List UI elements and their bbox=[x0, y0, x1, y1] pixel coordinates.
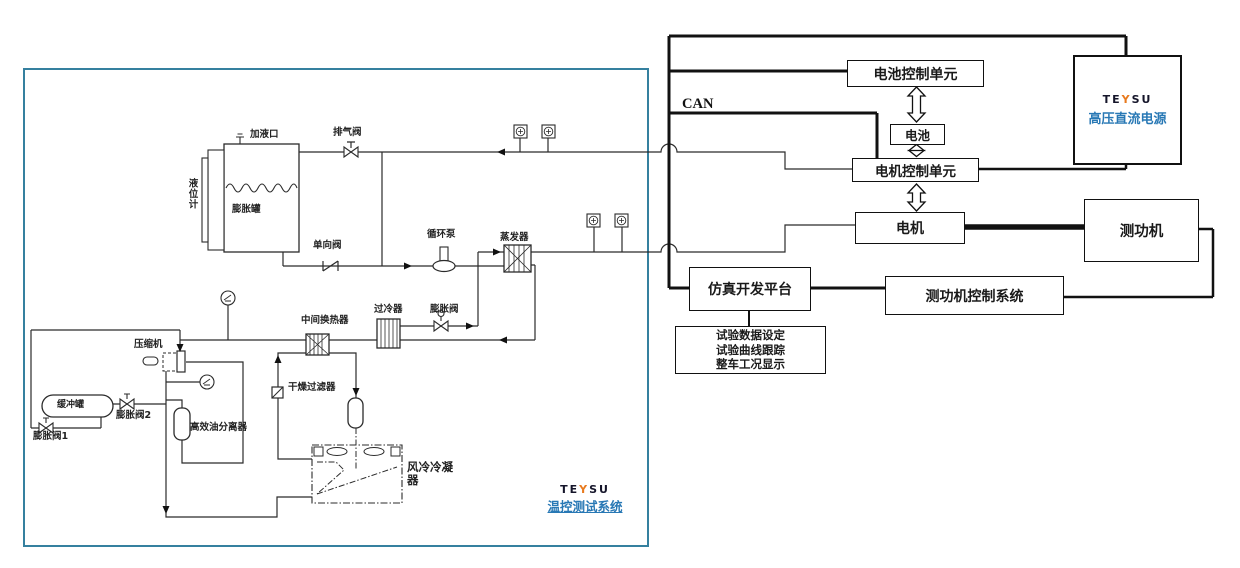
receiver-cylinder-icon bbox=[348, 398, 363, 428]
teysu-wordmark: TEYSU bbox=[1103, 93, 1153, 106]
info-line: 整车工况显示 bbox=[716, 357, 785, 372]
level-gauge-icon bbox=[202, 158, 208, 242]
motor-box: 电机 bbox=[855, 212, 965, 244]
expansion-tank-label: 膨胀罐 bbox=[232, 205, 261, 215]
teysu-logo: TEYSU 温控测试系统 bbox=[525, 483, 645, 515]
expansion-tank bbox=[202, 134, 299, 252]
info-line: 试验曲线跟踪 bbox=[716, 343, 785, 358]
sensor-icon bbox=[615, 214, 628, 227]
thermal-panel-border bbox=[24, 69, 648, 546]
simulation-platform-box: 仿真开发平台 bbox=[689, 267, 811, 311]
motor-control-unit-box: 电机控制单元 bbox=[852, 158, 979, 182]
subcooler-icon bbox=[377, 319, 400, 348]
evaporator-icon bbox=[504, 245, 531, 272]
battery-control-unit-box: 电池控制单元 bbox=[847, 60, 984, 87]
info-line: 试验数据设定 bbox=[716, 328, 785, 343]
condenser-label: 风冷冷凝器 bbox=[407, 461, 459, 486]
check-valve-label: 单向阀 bbox=[313, 241, 342, 251]
intermediate-hx-label: 中间换热器 bbox=[301, 316, 349, 326]
pressure-gauge-icon bbox=[200, 375, 214, 389]
exhaust-valve-label: 排气阀 bbox=[333, 128, 362, 138]
intermediate-hx-icon bbox=[306, 334, 329, 355]
power-supply-title: 高压直流电源 bbox=[1088, 108, 1166, 127]
double-arrow-icons bbox=[908, 87, 925, 211]
expansion-valve-label: 膨胀阀 bbox=[430, 305, 459, 315]
can-bus-label: CAN bbox=[682, 96, 713, 113]
dynamometer-box: 测功机 bbox=[1084, 199, 1199, 262]
teysu-wordmark: TEYSU bbox=[525, 483, 645, 496]
simulation-info-box: 试验数据设定 试验曲线跟踪 整车工况显示 bbox=[675, 326, 826, 374]
dynamometer-control-system-box: 测功机控制系统 bbox=[885, 276, 1064, 315]
fan-icon bbox=[327, 448, 347, 456]
evaporator-label: 蒸发器 bbox=[500, 233, 529, 243]
condenser-icon bbox=[312, 428, 402, 503]
buffer-tank-label: 缓冲罐 bbox=[57, 401, 84, 411]
fill-port-label: 加液口 bbox=[250, 130, 279, 140]
subcooler-label: 过冷器 bbox=[374, 305, 403, 315]
double-arrow-icon bbox=[908, 184, 925, 211]
double-arrow-icon bbox=[908, 87, 925, 122]
oil-separator-icon bbox=[174, 408, 190, 440]
schematic-page: 加液口 排气阀 液位计 膨胀罐 单向阀 循环泵 蒸发器 中间换热器 过冷器 膨胀… bbox=[0, 0, 1240, 568]
circulation-pump-icon bbox=[433, 247, 455, 272]
sensor-icon bbox=[542, 125, 555, 138]
compressor-label: 压缩机 bbox=[134, 340, 163, 350]
hv-dc-power-supply-box: TEYSU 高压直流电源 bbox=[1073, 55, 1182, 165]
level-gauge-label: 液位计 bbox=[186, 178, 196, 210]
sensor-icon bbox=[587, 214, 600, 227]
coolant-return-pipe bbox=[531, 225, 855, 252]
sensor-icons bbox=[514, 125, 628, 227]
fan-icon bbox=[364, 448, 384, 456]
oil-separator-label: 高效油分离器 bbox=[190, 423, 247, 433]
dryer-filter-icon bbox=[272, 387, 283, 398]
battery-box: 电池 bbox=[890, 124, 945, 145]
system-title: 温控测试系统 bbox=[525, 496, 645, 515]
pressure-gauge-icon bbox=[221, 291, 235, 305]
sensor-icon bbox=[514, 125, 527, 138]
dryer-filter-label: 干燥过滤器 bbox=[288, 383, 336, 393]
fill-port-icon bbox=[236, 134, 244, 144]
expansion-valve-2-icon bbox=[120, 394, 134, 409]
compressor-icon bbox=[143, 351, 185, 372]
double-arrow-icon bbox=[909, 145, 924, 157]
expansion-valve-2-label: 膨胀阀2 bbox=[116, 411, 151, 421]
expansion-valve-1-label: 膨胀阀1 bbox=[33, 432, 68, 442]
exhaust-valve-icon bbox=[344, 147, 358, 157]
circulation-pump-label: 循环泵 bbox=[427, 230, 456, 240]
